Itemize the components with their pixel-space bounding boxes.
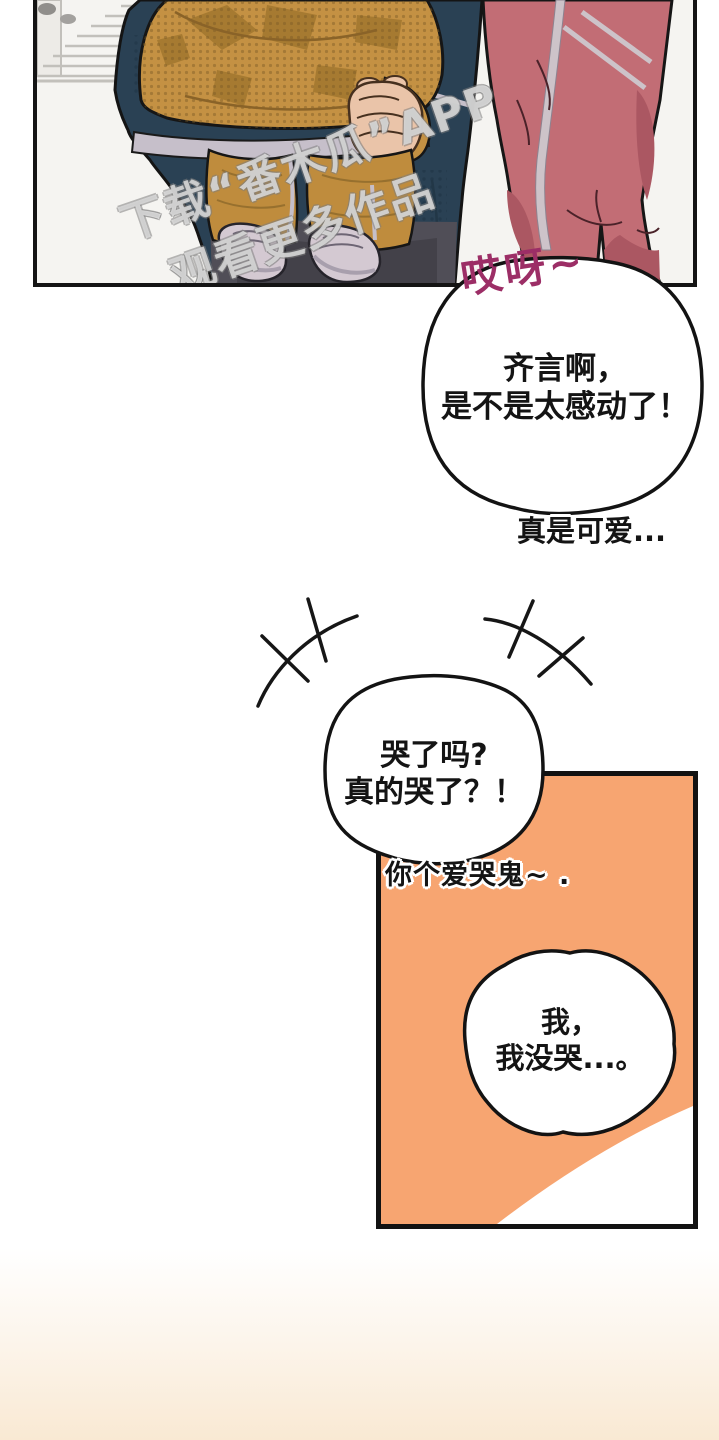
bubble1-line1: 齐言啊， <box>425 350 705 388</box>
bubble2-text: 哭了吗? 真的哭了？！ <box>324 737 544 811</box>
comic-panel-orange <box>376 771 698 1229</box>
bubble1-line2: 是不是太感动了！ <box>425 388 705 426</box>
bubble2-line2: 真的哭了？！ <box>324 774 544 811</box>
bubble2-line1: 哭了吗? <box>324 737 544 774</box>
emphasis-marks-icon <box>258 599 591 706</box>
bubble1-text: 齐言啊， 是不是太感动了！ <box>425 350 705 426</box>
bubble3-line1: 我， <box>462 1004 678 1040</box>
page-bottom-gradient <box>0 1248 719 1440</box>
caption-small-1: 真是可爱... <box>517 508 666 550</box>
bubble3-text: 我， 我没哭...。 <box>462 1004 678 1076</box>
bubble3-line2: 我没哭...。 <box>462 1040 678 1076</box>
white-silhouette <box>497 1106 693 1224</box>
orange-panel-art <box>381 776 693 1224</box>
caption-small-2: 你个爱哭鬼~ . <box>385 853 570 892</box>
statue-ornament <box>38 3 56 15</box>
statue-ornament <box>60 14 76 24</box>
